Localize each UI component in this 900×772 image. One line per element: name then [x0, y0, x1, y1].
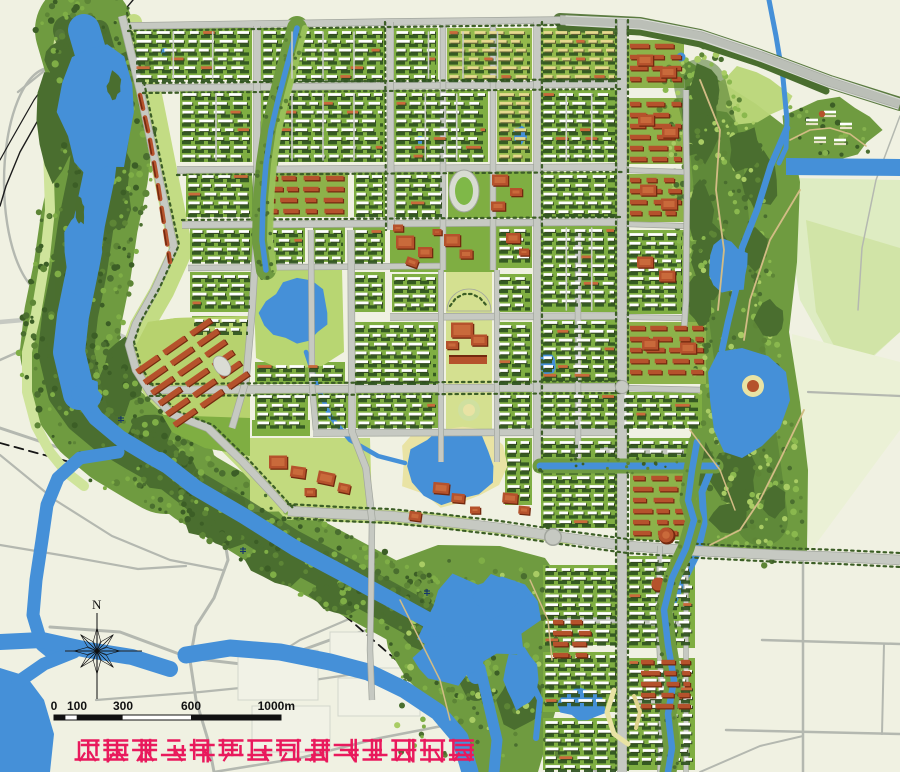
svg-text:100: 100 — [67, 699, 87, 713]
svg-text:N: N — [92, 597, 102, 612]
svg-text:1000m: 1000m — [258, 699, 295, 713]
svg-text:300: 300 — [113, 699, 133, 713]
svg-text:600: 600 — [181, 699, 201, 713]
svg-text:0: 0 — [51, 699, 58, 713]
